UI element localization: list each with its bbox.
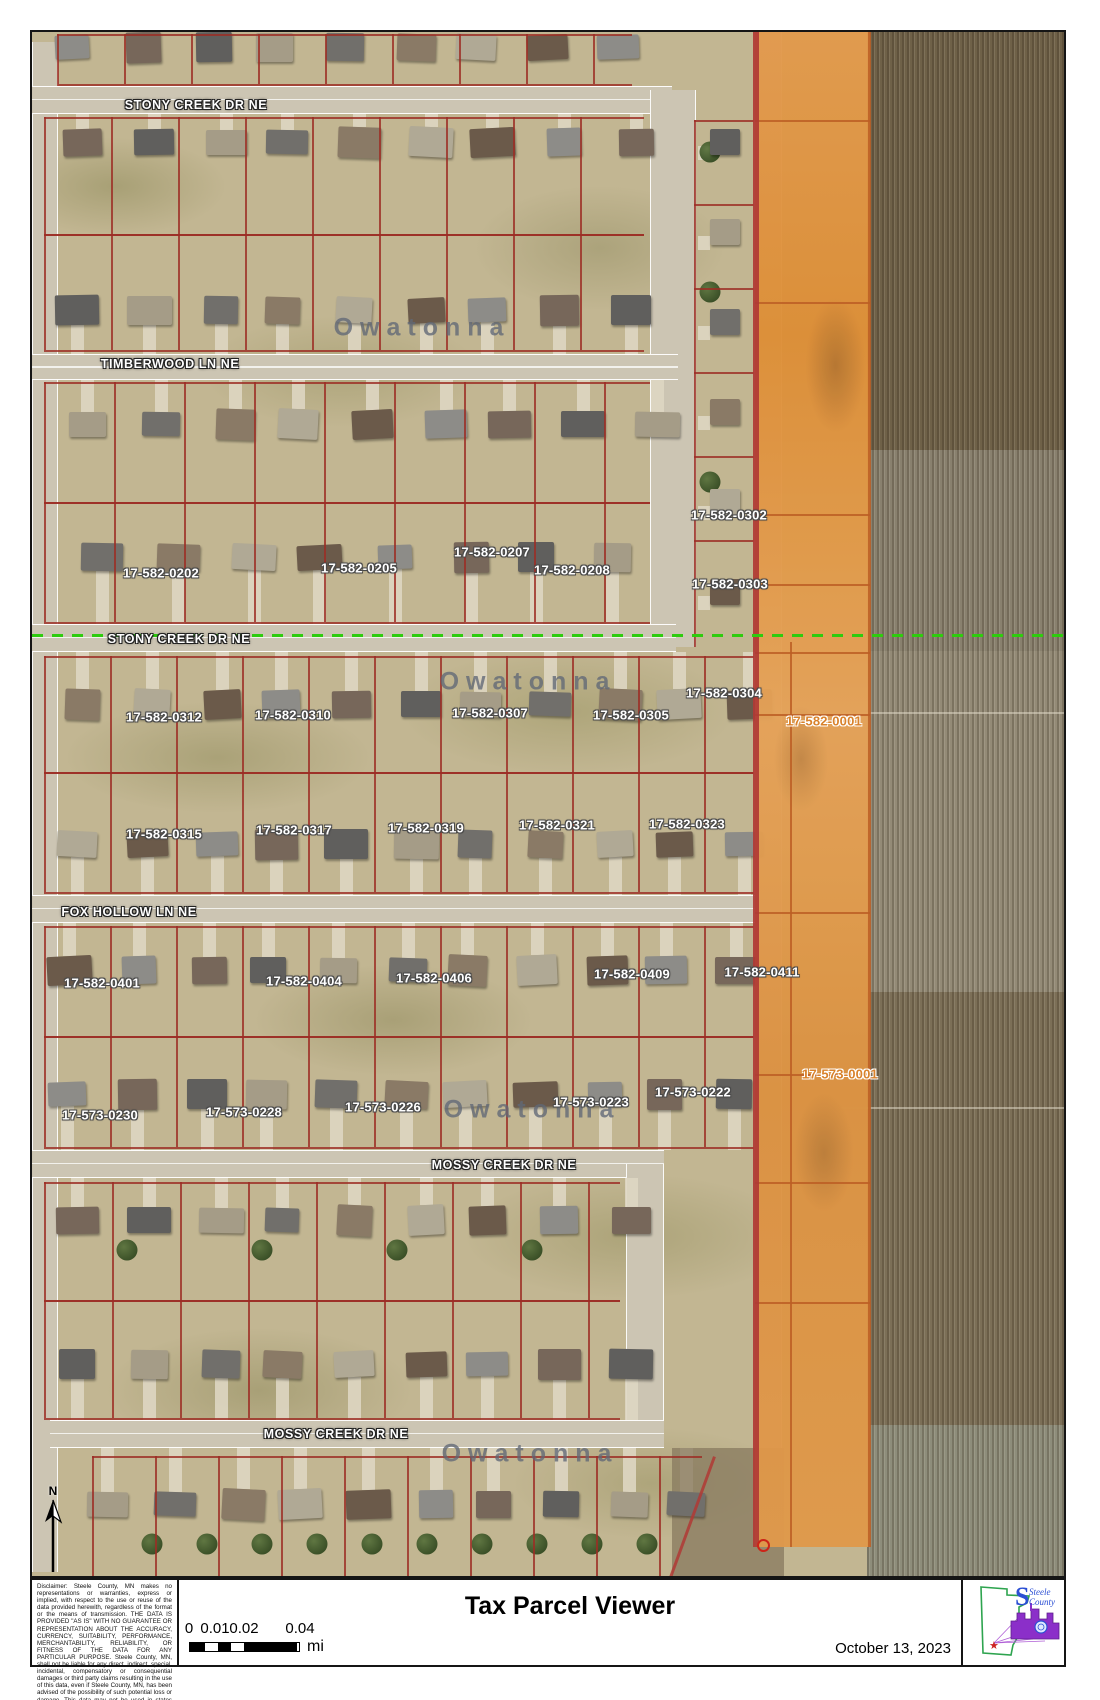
map-title: Tax Parcel Viewer: [179, 1592, 961, 1621]
house: [611, 295, 651, 325]
driveway: [276, 1378, 289, 1421]
parcel-line: [57, 34, 632, 36]
parcel-line: [374, 1036, 376, 1147]
parcel-line: [248, 1182, 250, 1300]
parcel-line: [513, 234, 515, 350]
parcel-line: [379, 117, 381, 234]
house: [55, 295, 100, 326]
parcel-line: [604, 382, 606, 502]
house: [130, 1349, 168, 1379]
house: [215, 408, 255, 440]
parcel-line: [704, 772, 706, 892]
parcel-label: 17-573-0001: [802, 1067, 878, 1082]
parcel-line: [452, 1182, 454, 1300]
house: [561, 411, 605, 437]
parcel-line: [534, 382, 536, 502]
house: [612, 1207, 651, 1234]
house: [154, 1491, 197, 1516]
house: [487, 410, 530, 438]
house: [221, 1487, 266, 1520]
parcel-line: [694, 120, 754, 122]
parcel-line: [44, 117, 644, 119]
house: [547, 127, 582, 156]
driveway: [440, 380, 453, 410]
house: [540, 1206, 578, 1235]
parcel-label: 17-582-0315: [126, 827, 202, 842]
footer-main: Tax Parcel Viewer 0 0.01 0.02 0.04 mi Oc…: [179, 1580, 961, 1665]
parcel-label: 17-582-0207: [454, 545, 530, 560]
driveway: [698, 326, 710, 340]
driveway: [362, 1448, 375, 1490]
parcel-line: [44, 772, 46, 892]
parcel-line: [325, 34, 327, 84]
scale-label: 0.02: [229, 1620, 258, 1637]
parcel-label: 17-573-0226: [345, 1100, 421, 1115]
parcel-line: [694, 120, 696, 647]
house: [610, 1491, 648, 1517]
house: [476, 1491, 511, 1518]
house: [710, 219, 740, 245]
parcel-line: [44, 117, 46, 234]
parcel-line: [312, 117, 314, 234]
parcel-line: [44, 892, 754, 894]
parcel-label: 17-582-0208: [534, 563, 610, 578]
house: [419, 1490, 453, 1519]
parcel-line: [572, 926, 574, 1036]
street-label: FOX HOLLOW LN NE: [61, 905, 196, 919]
parcel-line: [513, 117, 515, 234]
parcel-line: [464, 502, 466, 622]
parcel-line: [407, 1456, 409, 1578]
house: [196, 32, 233, 63]
house: [597, 34, 640, 59]
parcel-label: 17-582-0305: [593, 708, 669, 723]
house: [469, 126, 515, 157]
driveway: [625, 1379, 638, 1420]
parcel-line: [44, 234, 644, 236]
driveway: [730, 923, 743, 957]
house: [202, 1349, 241, 1378]
house: [516, 954, 558, 986]
parcel-line: [44, 926, 754, 928]
street-label: STONY CREEK DR NE: [125, 98, 267, 112]
parcel-line: [374, 656, 376, 772]
house: [333, 1350, 374, 1378]
parcel-line: [694, 204, 754, 206]
parcel-label: 17-582-0406: [396, 971, 472, 986]
parcel-label: 17-582-0323: [649, 817, 725, 832]
house: [345, 1489, 391, 1520]
house: [142, 412, 180, 437]
parcel-line: [242, 772, 244, 892]
house: [407, 1204, 445, 1236]
driveway: [553, 1380, 566, 1421]
house: [405, 1351, 447, 1377]
driveway: [623, 1448, 636, 1492]
house: [277, 408, 319, 440]
farm-field: [867, 32, 1066, 1578]
parcel-line: [44, 234, 46, 350]
highlight-parcel-line: [755, 514, 870, 516]
driveway: [348, 1377, 361, 1420]
highlight-parcel-line: [755, 652, 870, 654]
parcel-line: [218, 1456, 220, 1578]
north-arrow-icon: [42, 1498, 64, 1576]
parcel-line: [704, 656, 706, 772]
parcel-label: 17-582-0001: [786, 714, 862, 729]
parcel-line: [111, 117, 113, 234]
driveway: [402, 923, 415, 958]
house: [655, 831, 693, 857]
driveway: [469, 858, 482, 895]
driveway: [270, 860, 283, 896]
parcel-line: [44, 382, 650, 384]
driveway: [539, 858, 552, 896]
house: [117, 1078, 157, 1110]
parcel-line: [520, 1300, 522, 1418]
parcel-line: [44, 502, 46, 622]
map-date: October 13, 2023: [835, 1640, 951, 1657]
parcel-line: [281, 1456, 283, 1578]
parcel-label: 17-582-0317: [256, 823, 332, 838]
parcel-line: [124, 34, 126, 84]
parcel-line: [114, 502, 116, 622]
parcel-line: [176, 1036, 178, 1147]
house: [59, 1349, 95, 1379]
parcel-line: [57, 84, 632, 86]
house: [527, 830, 563, 859]
parcel-label: 17-582-0304: [686, 686, 762, 701]
house: [266, 130, 308, 155]
parcel-line: [178, 117, 180, 234]
house: [206, 130, 247, 155]
parcel-line: [248, 1300, 250, 1418]
driveway: [420, 1377, 433, 1421]
parcel-label: 17-582-0404: [266, 974, 342, 989]
parcel-line: [44, 382, 46, 502]
house: [468, 1205, 506, 1235]
driveway: [651, 380, 664, 412]
driveway: [425, 114, 438, 127]
house: [710, 309, 740, 335]
driveway: [141, 857, 154, 896]
parcel-line: [394, 382, 396, 502]
driveway: [101, 1448, 114, 1492]
house: [256, 33, 293, 62]
scale-label: 0.04: [285, 1620, 314, 1637]
driveway: [211, 856, 224, 895]
parcel-line: [254, 502, 256, 622]
parcel-line: [44, 1182, 620, 1184]
street-label: MOSSY CREEK DR NE: [432, 1158, 577, 1172]
parcel-line: [374, 926, 376, 1036]
parcel-label: 17-582-0319: [388, 821, 464, 836]
parcel-label: 17-582-0310: [255, 708, 331, 723]
parcel-label: 17-582-0202: [123, 566, 199, 581]
house: [191, 956, 226, 984]
city-watermark: Owatonna: [334, 314, 511, 343]
house: [55, 1206, 98, 1234]
house: [336, 1204, 373, 1237]
parcel-line: [464, 382, 466, 502]
house: [596, 830, 633, 858]
parcel-line: [596, 1456, 598, 1578]
driveway: [81, 380, 94, 412]
highlight-parcel-line: [755, 1302, 870, 1304]
house: [326, 33, 364, 62]
driveway: [237, 1448, 250, 1489]
parcel-label: 17-573-0222: [655, 1085, 731, 1100]
parcel-line: [44, 1182, 46, 1300]
parcel-label: 17-573-0223: [553, 1095, 629, 1110]
house: [62, 128, 102, 156]
parcel-line: [694, 288, 754, 290]
parcel-line: [44, 1300, 620, 1302]
parcel-label: 17-582-0302: [691, 508, 767, 523]
parcel-line: [440, 1036, 442, 1147]
steele-county-logo-icon: S Steele County ★: [967, 1583, 1061, 1663]
tree-icon: [472, 1534, 493, 1555]
parcel-line: [242, 1036, 244, 1147]
parcel-line: [638, 772, 640, 892]
parcel-line: [344, 1456, 346, 1578]
parcel-line: [44, 622, 650, 624]
driveway: [294, 1448, 307, 1489]
house: [203, 689, 241, 720]
parcel-label: 17-582-0411: [724, 965, 799, 980]
parcel-label: 17-582-0205: [321, 561, 397, 576]
city-watermark: Owatonna: [440, 668, 617, 697]
tree-icon: [117, 1240, 138, 1261]
driveway: [503, 380, 516, 411]
driveway: [71, 1379, 84, 1420]
parcel-line: [245, 234, 247, 350]
driveway: [229, 380, 242, 409]
house: [264, 296, 300, 324]
parcel-line: [44, 772, 754, 774]
parcel-line: [110, 1036, 112, 1147]
parcel-line: [191, 34, 193, 84]
parcel-line: [242, 656, 244, 772]
city-watermark: Owatonna: [442, 1440, 619, 1469]
tree-icon: [527, 1534, 548, 1555]
house: [56, 830, 97, 858]
tree-icon: [197, 1534, 218, 1555]
house: [134, 129, 174, 156]
driveway: [658, 1110, 671, 1151]
house: [265, 1207, 300, 1232]
driveway: [332, 923, 345, 958]
parcel-line: [506, 1036, 508, 1147]
driveway: [330, 1108, 343, 1150]
parcel-label: 17-573-0230: [62, 1108, 138, 1123]
parcel-line: [111, 234, 113, 350]
parcel-line: [44, 1036, 754, 1038]
house: [425, 409, 468, 438]
parcel-line: [44, 926, 46, 1036]
tree-icon: [252, 1240, 273, 1261]
tree-icon: [417, 1534, 438, 1555]
driveway: [625, 1178, 638, 1207]
parcel-line: [588, 1182, 590, 1300]
driveway: [262, 923, 275, 957]
highlight-parcel-line: [755, 302, 870, 304]
parcel-line: [44, 1300, 46, 1418]
highlight-parcel-line: [755, 912, 870, 914]
parcel-line: [44, 350, 644, 352]
parcel-label: 17-573-0228: [206, 1105, 282, 1120]
driveway: [609, 857, 622, 895]
parcel-label: 17-582-0303: [692, 577, 768, 592]
parcel-line: [245, 117, 247, 234]
parcel-line: [44, 656, 46, 772]
logo-text-line2: County: [1029, 1597, 1055, 1607]
map-footer: Disclaimer: Steele County, MN makes no r…: [30, 1578, 1066, 1667]
tree-icon: [362, 1534, 383, 1555]
house: [64, 688, 100, 720]
parcel-line: [44, 1036, 46, 1147]
major-boundary-line: [753, 32, 759, 1547]
parcel-line: [452, 1300, 454, 1418]
parcel-line: [572, 1036, 574, 1147]
house: [81, 543, 123, 572]
house: [609, 1349, 654, 1380]
street-label: MOSSY CREEK DR NE: [264, 1427, 409, 1441]
parcel-line: [659, 1456, 661, 1578]
house: [455, 33, 496, 61]
map-canvas[interactable]: N OwatonnaOwatonnaOwatonnaOwatonnaSTONY …: [30, 30, 1066, 1578]
house: [331, 690, 370, 718]
driveway: [353, 114, 366, 127]
parcel-label: 17-582-0321: [519, 818, 595, 833]
driveway: [366, 380, 379, 410]
field-track-line: [842, 712, 1066, 714]
driveway: [215, 1378, 228, 1420]
house: [262, 1349, 302, 1378]
house: [204, 296, 238, 325]
scale-unit: mi: [307, 1638, 324, 1656]
house: [539, 294, 579, 326]
parcel-line: [112, 1300, 114, 1418]
county-logo: S Steele County ★: [961, 1580, 1064, 1665]
parcel-line: [184, 502, 186, 622]
parcel-line: [178, 234, 180, 350]
tax-parcel-viewer-page: N OwatonnaOwatonnaOwatonnaOwatonnaSTONY …: [0, 0, 1100, 1700]
parcel-label: 17-582-0312: [126, 710, 202, 725]
parcel-line: [374, 772, 376, 892]
tree-icon: [700, 282, 721, 303]
parcel-line: [384, 1300, 386, 1418]
parcel-line: [44, 1147, 754, 1149]
parcel-line: [704, 926, 706, 1036]
logo-text-line1: Steele: [1029, 1587, 1051, 1597]
parcel-line: [176, 926, 178, 1036]
parcel-line: [110, 656, 112, 772]
driveway: [577, 380, 590, 411]
house: [48, 1081, 87, 1106]
driveway: [698, 596, 710, 610]
house: [277, 1488, 323, 1520]
house: [69, 412, 106, 437]
highlight-parcel-line: [755, 1182, 870, 1184]
scale-label: 0: [185, 1620, 193, 1637]
parcel-line: [384, 1182, 386, 1300]
north-label: N: [40, 1484, 66, 1498]
parcel-line: [506, 926, 508, 1036]
boundary-end-marker: [757, 1539, 770, 1552]
scale-label: 0.01: [200, 1620, 229, 1637]
parcel-line: [114, 382, 116, 502]
parcel-line: [44, 502, 650, 504]
driveway: [203, 923, 216, 957]
driveway: [738, 856, 751, 895]
scale-bar-segments: [189, 1642, 300, 1652]
parcel-line: [520, 1182, 522, 1300]
parcel-line: [638, 1036, 640, 1147]
parcel-line: [316, 1300, 318, 1418]
driveway: [340, 859, 353, 895]
house: [351, 408, 393, 439]
tree-icon: [252, 1534, 273, 1555]
house: [337, 126, 381, 158]
highlight-parcel-band: [755, 32, 870, 1547]
parcel-line: [92, 1456, 94, 1578]
house: [401, 691, 441, 717]
street-label: TIMBERWOOD LN NE: [101, 357, 240, 371]
parcel-line: [155, 1456, 157, 1578]
svg-text:★: ★: [989, 1640, 999, 1652]
driveway: [698, 236, 710, 250]
tree-icon: [142, 1534, 163, 1555]
parcel-line: [258, 34, 260, 84]
parcel-line: [694, 540, 754, 542]
driveway: [465, 573, 478, 625]
tree-icon: [637, 1534, 658, 1555]
parcel-line: [180, 1300, 182, 1418]
house: [538, 1349, 581, 1380]
house: [710, 129, 740, 155]
driveway: [96, 571, 109, 624]
house: [634, 411, 679, 437]
house: [466, 1352, 508, 1377]
scale-bar: 0 0.01 0.02 0.04 mi: [189, 1620, 369, 1664]
house: [396, 33, 436, 61]
street-label: STONY CREEK DR NE: [108, 632, 250, 646]
driveway: [292, 380, 305, 409]
house: [198, 1207, 243, 1233]
tree-icon: [387, 1240, 408, 1261]
driveway: [410, 859, 423, 896]
driveway: [698, 416, 710, 430]
parcel-line: [446, 117, 448, 234]
house: [710, 399, 740, 425]
driveway: [668, 857, 681, 896]
north-arrow: N: [40, 1484, 66, 1578]
parcel-line: [593, 34, 595, 84]
house: [526, 33, 568, 60]
parcel-line: [526, 34, 528, 84]
parcel-line: [580, 234, 582, 350]
field-track-line: [842, 1107, 1066, 1109]
driveway: [728, 1109, 741, 1150]
house: [127, 1207, 171, 1233]
parcel-line: [324, 382, 326, 502]
house: [618, 128, 653, 156]
tree-icon: [307, 1534, 328, 1555]
highlight-parcel-line: [755, 120, 870, 122]
highlight-parcel-line: [790, 642, 792, 1547]
parcel-line: [694, 456, 754, 458]
